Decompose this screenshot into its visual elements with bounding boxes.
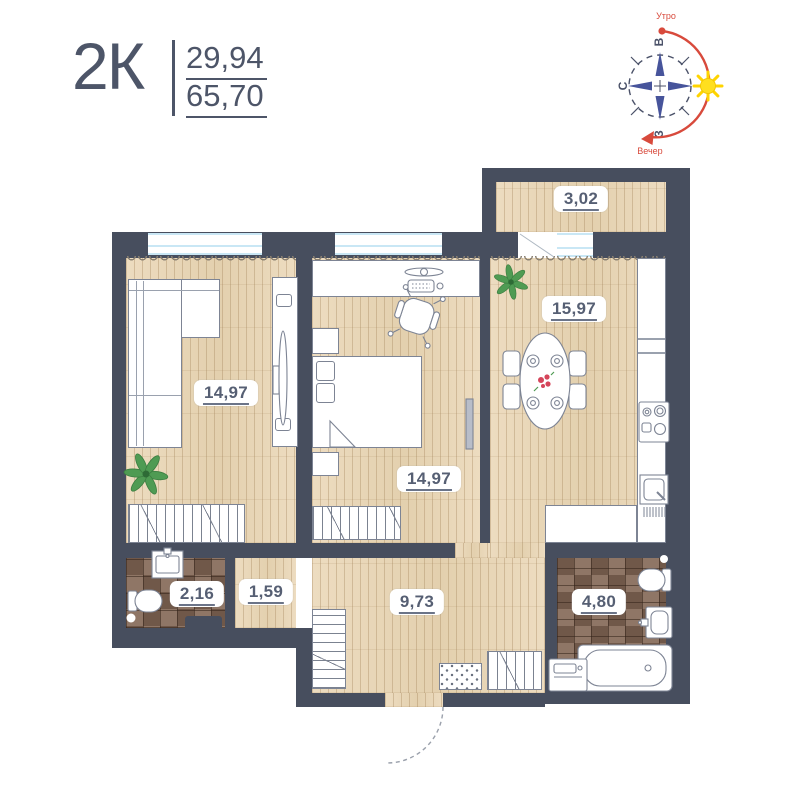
living-room-window bbox=[148, 233, 262, 255]
wall-segment bbox=[126, 543, 455, 558]
entrance-floor bbox=[385, 693, 443, 707]
room-label-living: 14,97 bbox=[194, 380, 258, 406]
sofa-back-line bbox=[143, 281, 144, 446]
wall-segment bbox=[666, 168, 690, 704]
wall-segment bbox=[296, 258, 312, 543]
wall-segment bbox=[225, 558, 235, 628]
wall-segment bbox=[545, 688, 666, 704]
compass-evening-label: Вечер bbox=[637, 146, 662, 156]
sofa-cushion-line bbox=[129, 395, 181, 396]
room-label-bathroom: 4,80 bbox=[572, 589, 626, 615]
wall-segment bbox=[443, 693, 545, 707]
bedroom-door-opening-floor bbox=[455, 543, 490, 558]
sun-path-arrowhead bbox=[641, 131, 654, 145]
bathroom-door-threshold bbox=[557, 544, 607, 557]
compass-dir-top: В bbox=[652, 37, 666, 46]
compass-dir-left: С bbox=[616, 81, 630, 90]
sun-path-start-dot bbox=[658, 27, 665, 34]
room-label-wc: 2,16 bbox=[170, 581, 224, 607]
living-wardrobe bbox=[128, 504, 245, 543]
wall-segment bbox=[480, 258, 490, 543]
kitchen-counter-right bbox=[637, 258, 666, 543]
wall-segment bbox=[482, 168, 666, 182]
tv-console-shelf bbox=[275, 418, 291, 431]
balcony-window bbox=[557, 233, 593, 257]
living-area-value: 29,94 bbox=[186, 40, 267, 80]
wall-segment bbox=[545, 543, 557, 693]
room-label-corridor: 1,59 bbox=[239, 579, 293, 605]
plan-type-label: 2К bbox=[72, 28, 143, 104]
room-label-kitchen: 15,97 bbox=[542, 296, 606, 322]
room-label-hall: 9,73 bbox=[390, 589, 444, 615]
hall-wardrobe-left bbox=[312, 609, 346, 689]
nightstand bbox=[312, 328, 339, 354]
bathroom-floor bbox=[557, 558, 666, 688]
hall-wardrobe-right bbox=[487, 651, 542, 690]
room-label-balcony: 3,02 bbox=[554, 186, 608, 212]
sofa-armrest-line bbox=[129, 290, 219, 291]
pillow bbox=[316, 361, 335, 381]
bedroom-wardrobe bbox=[312, 506, 401, 540]
kitchen-counter-bottom bbox=[545, 505, 637, 543]
corridor-door bbox=[296, 558, 312, 628]
wall-segment bbox=[482, 168, 496, 258]
tv-console-shelf bbox=[276, 294, 292, 307]
wall-segment bbox=[296, 628, 312, 707]
wall-segment bbox=[593, 232, 666, 258]
compass-morning-label: Утро bbox=[656, 11, 676, 21]
counter-joint-line bbox=[638, 338, 665, 340]
doormat bbox=[439, 663, 482, 690]
wall-segment bbox=[112, 232, 126, 648]
kitchen-hall-opening-floor bbox=[490, 543, 545, 558]
bedroom-window bbox=[335, 233, 442, 255]
nightstand bbox=[312, 452, 339, 476]
header-divider bbox=[172, 40, 175, 116]
entrance-door-swing-arc bbox=[387, 707, 443, 763]
pillow bbox=[316, 383, 335, 403]
wc-door-threshold bbox=[185, 616, 222, 632]
sofa-back-line bbox=[136, 281, 137, 446]
sun-icon bbox=[694, 72, 722, 100]
total-area-value: 65,70 bbox=[186, 78, 267, 118]
compass-center-cross bbox=[654, 80, 666, 92]
compass-rose: В С З Утро Вечер bbox=[600, 6, 770, 164]
living-curtain bbox=[126, 256, 296, 268]
room-label-bedroom: 14,97 bbox=[397, 466, 461, 492]
desk bbox=[312, 260, 480, 297]
counter-joint-line bbox=[638, 352, 665, 354]
balcony-door bbox=[518, 232, 557, 258]
wall-segment bbox=[496, 232, 518, 258]
